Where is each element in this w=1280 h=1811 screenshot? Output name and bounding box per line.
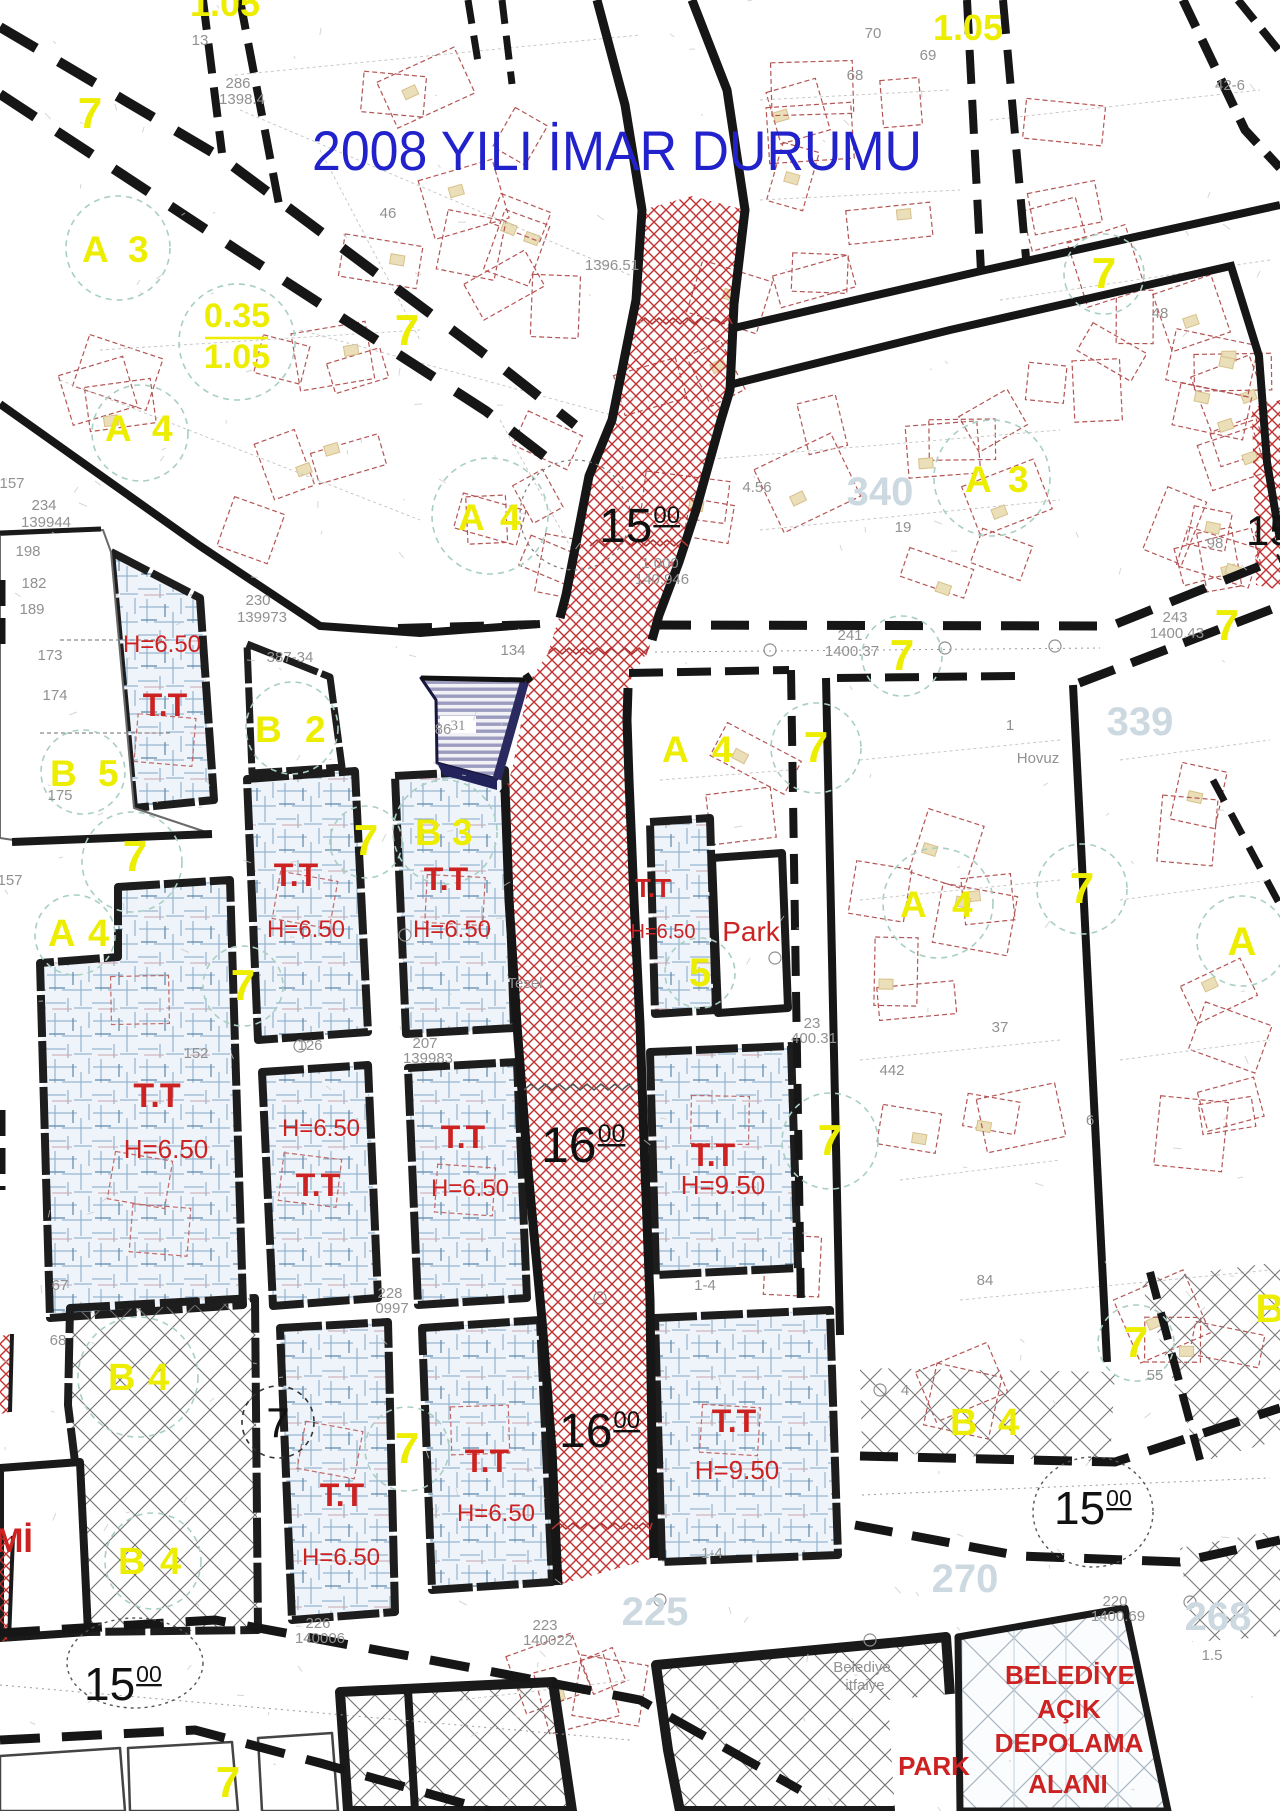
svg-text:48: 48 — [1152, 305, 1169, 322]
svg-text:BELEDİYE: BELEDİYE — [1005, 1660, 1135, 1690]
svg-text:7: 7 — [216, 1758, 240, 1807]
svg-text:1.000: 1.000 — [641, 555, 679, 572]
svg-text:1.05: 1.05 — [190, 0, 260, 24]
svg-text:69: 69 — [920, 47, 937, 64]
svg-text:1400.69: 1400.69 — [1091, 1608, 1145, 1625]
svg-text:7: 7 — [78, 89, 102, 138]
svg-text:4: 4 — [160, 1541, 181, 1583]
svg-text:T.T: T.T — [274, 857, 319, 893]
svg-text:55: 55 — [1147, 1367, 1164, 1384]
svg-text:1400.43: 1400.43 — [1150, 625, 1204, 642]
svg-text:B: B — [1256, 1287, 1280, 1331]
svg-text:1398.4: 1398.4 — [219, 91, 265, 108]
svg-text:4: 4 — [148, 1357, 169, 1399]
svg-text:31: 31 — [451, 718, 466, 734]
svg-text:139973: 139973 — [237, 609, 287, 626]
svg-text:225: 225 — [622, 1590, 689, 1634]
svg-text:T.T: T.T — [712, 1403, 757, 1439]
svg-text:1396.51: 1396.51 — [585, 257, 639, 274]
svg-text:234: 234 — [31, 497, 56, 514]
svg-text:126: 126 — [297, 1037, 322, 1054]
svg-text:157: 157 — [0, 872, 23, 889]
svg-text:286: 286 — [225, 75, 250, 92]
svg-text:T.T: T.T — [691, 1137, 736, 1173]
svg-text:7: 7 — [1092, 249, 1116, 298]
svg-text:442: 442 — [879, 1062, 904, 1079]
svg-text:H=9.50: H=9.50 — [695, 1455, 780, 1485]
svg-text:152: 152 — [183, 1045, 208, 1062]
svg-text:182: 182 — [21, 575, 46, 592]
svg-text:189: 189 — [19, 601, 44, 618]
svg-text:2: 2 — [305, 709, 326, 750]
svg-text:4.56: 4.56 — [742, 479, 771, 496]
svg-text:46: 46 — [380, 205, 397, 222]
svg-text:H=6.50: H=6.50 — [457, 1500, 535, 1527]
svg-text:H=9.50: H=9.50 — [681, 1170, 766, 1200]
svg-text:AÇIK: AÇIK — [1037, 1694, 1101, 1724]
svg-text:19: 19 — [895, 519, 912, 536]
svg-text:7: 7 — [266, 1399, 289, 1446]
svg-text:139983: 139983 — [403, 1050, 453, 1067]
svg-text:5: 5 — [98, 753, 119, 794]
svg-text:itfaiye: itfaiye — [845, 1677, 884, 1694]
svg-text:1-4: 1-4 — [694, 1277, 716, 1294]
svg-text:7: 7 — [395, 306, 419, 355]
svg-text:Belediye: Belediye — [833, 1659, 891, 1676]
svg-text:98: 98 — [1207, 535, 1224, 552]
svg-text:H=6.50: H=6.50 — [302, 1544, 380, 1571]
svg-text:7: 7 — [1124, 1318, 1148, 1367]
svg-text:H=6.50: H=6.50 — [630, 921, 695, 943]
svg-text:A: A — [458, 497, 485, 538]
svg-text:4: 4 — [901, 1382, 909, 1399]
svg-text:68: 68 — [50, 1332, 67, 1349]
svg-text:173: 173 — [37, 647, 62, 664]
svg-text:7: 7 — [123, 832, 147, 881]
svg-text:387-34: 387-34 — [267, 649, 314, 666]
svg-text:1.5: 1.5 — [1202, 1647, 1223, 1664]
svg-text:2008 YILI İMAR DURUMU: 2008 YILI İMAR DURUMU — [312, 119, 922, 182]
svg-text:3: 3 — [128, 229, 149, 270]
svg-text:T.T: T.T — [424, 861, 469, 897]
svg-text:198: 198 — [15, 543, 40, 560]
svg-text:7: 7 — [231, 961, 255, 1010]
svg-text:175: 175 — [47, 787, 72, 804]
svg-text:1-4: 1-4 — [701, 1545, 723, 1562]
svg-text:7: 7 — [804, 723, 828, 772]
svg-text:340: 340 — [847, 470, 914, 514]
svg-text:B: B — [255, 709, 282, 750]
svg-text:1.05: 1.05 — [204, 338, 270, 376]
svg-text:4: 4 — [500, 497, 521, 538]
svg-text:4: 4 — [952, 884, 973, 925]
svg-text:Tesel: Tesel — [507, 975, 542, 992]
svg-text:13: 13 — [192, 32, 209, 49]
svg-text:H=6.50: H=6.50 — [123, 631, 201, 658]
svg-text:3: 3 — [1008, 459, 1029, 500]
svg-text:241: 241 — [837, 627, 862, 644]
svg-text:7: 7 — [1070, 864, 1094, 913]
svg-text:140022: 140022 — [523, 1632, 573, 1649]
svg-text:3: 3 — [452, 812, 473, 853]
svg-text:6: 6 — [1086, 1112, 1094, 1129]
svg-text:70: 70 — [865, 25, 882, 42]
svg-text:T.T: T.T — [441, 1119, 486, 1155]
svg-text:339: 339 — [1107, 700, 1174, 744]
svg-text:68: 68 — [847, 67, 864, 84]
svg-text:4: 4 — [152, 408, 173, 449]
svg-text:140.946: 140.946 — [635, 571, 689, 588]
svg-text:H=6.50: H=6.50 — [124, 1134, 209, 1164]
svg-text:A: A — [662, 729, 689, 770]
svg-text:174: 174 — [42, 687, 67, 704]
svg-text:T.T: T.T — [635, 873, 671, 903]
svg-text:H=6.50: H=6.50 — [267, 916, 345, 943]
svg-text:DEPOLAMA: DEPOLAMA — [995, 1728, 1144, 1758]
svg-text:86: 86 — [435, 721, 452, 738]
svg-text:400.31: 400.31 — [791, 1030, 837, 1047]
svg-text:157: 157 — [0, 475, 25, 492]
svg-text:7: 7 — [1215, 601, 1239, 650]
svg-text:Hovuz: Hovuz — [1017, 750, 1060, 767]
svg-text:1.05: 1.05 — [933, 7, 1003, 48]
svg-text:1500: 1500 — [1246, 507, 1280, 554]
svg-text:7: 7 — [395, 1424, 419, 1473]
svg-text:A: A — [48, 913, 75, 955]
svg-text:B: B — [108, 1357, 135, 1399]
svg-text:Park: Park — [722, 916, 781, 947]
svg-text:243: 243 — [1162, 609, 1187, 626]
svg-text:0.35: 0.35 — [204, 297, 270, 335]
svg-text:268: 268 — [1185, 1595, 1252, 1639]
svg-text:1400.37: 1400.37 — [825, 643, 879, 660]
svg-text:T.T: T.T — [133, 1077, 180, 1115]
svg-text:67: 67 — [52, 1277, 69, 1294]
svg-text:4: 4 — [88, 913, 109, 955]
svg-text:H=6.50: H=6.50 — [282, 1115, 360, 1142]
svg-text:139944: 139944 — [21, 514, 71, 531]
svg-text:B: B — [415, 812, 442, 853]
svg-text:A: A — [82, 229, 109, 270]
svg-text:A: A — [900, 884, 927, 925]
svg-text:4: 4 — [998, 1402, 1019, 1444]
svg-text:5: 5 — [689, 951, 711, 995]
svg-text:T.T: T.T — [320, 1477, 365, 1513]
svg-text:270: 270 — [932, 1557, 999, 1601]
svg-text:42-6: 42-6 — [1215, 77, 1245, 94]
svg-text:4: 4 — [712, 729, 733, 770]
svg-text:134: 134 — [500, 642, 525, 659]
svg-text:A: A — [1228, 920, 1257, 964]
svg-text:Mİ: Mİ — [0, 1522, 33, 1560]
svg-text:7: 7 — [354, 816, 378, 865]
svg-text:H=6.50: H=6.50 — [431, 1175, 509, 1202]
svg-text:A: A — [965, 459, 992, 500]
svg-text:140006: 140006 — [295, 1630, 345, 1647]
svg-text:84: 84 — [977, 1272, 994, 1289]
svg-text:0997: 0997 — [375, 1300, 408, 1317]
svg-text:T.T: T.T — [143, 687, 188, 723]
svg-text:A: A — [105, 408, 132, 449]
svg-text:T.T: T.T — [465, 1443, 510, 1479]
svg-text:PARK: PARK — [898, 1751, 970, 1781]
svg-text:ALANI: ALANI — [1028, 1769, 1107, 1799]
svg-text:H=6.50: H=6.50 — [413, 916, 491, 943]
svg-text:7: 7 — [818, 1116, 842, 1165]
svg-text:T.T: T.T — [296, 1167, 341, 1203]
svg-text:230: 230 — [245, 592, 270, 609]
svg-text:37: 37 — [992, 1019, 1009, 1036]
svg-text:B: B — [118, 1541, 145, 1583]
svg-text:B: B — [950, 1402, 977, 1444]
svg-text:1: 1 — [1006, 717, 1014, 734]
svg-text:7: 7 — [890, 631, 914, 680]
